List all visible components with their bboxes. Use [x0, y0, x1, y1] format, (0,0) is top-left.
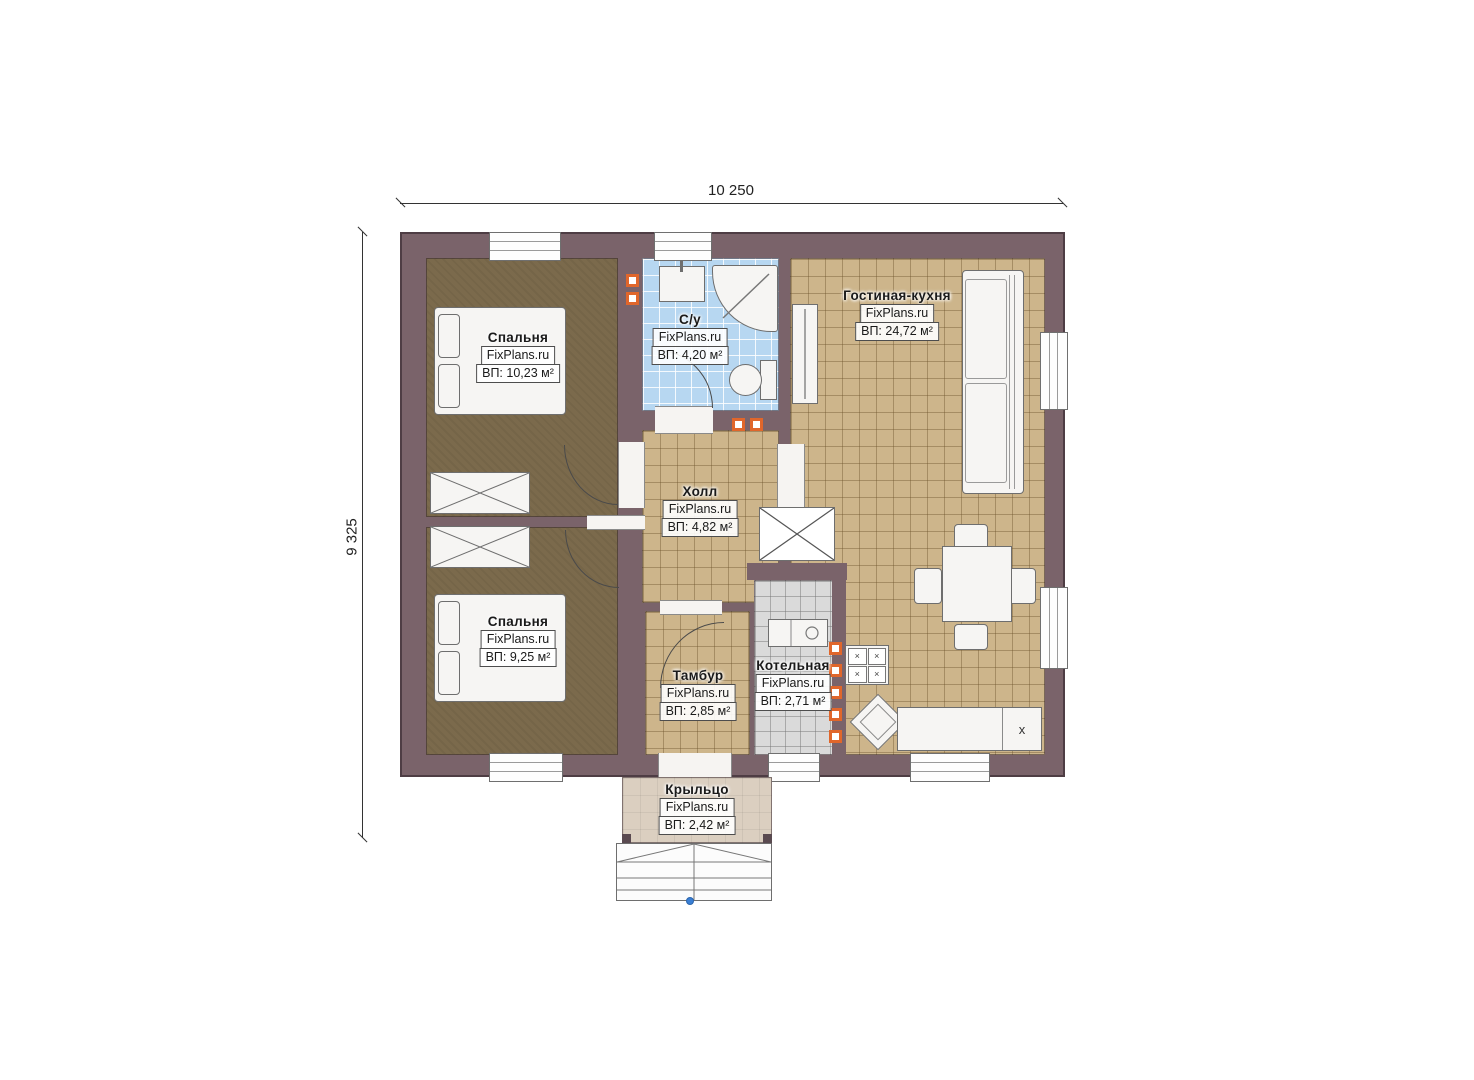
- burner-icon: ×: [848, 648, 867, 665]
- room-area: ВП: 2,42 м²: [659, 816, 736, 835]
- entry-door-opening: [658, 753, 732, 779]
- window-bathroom-top: [654, 232, 712, 261]
- bedroom2-door-opening: [587, 515, 645, 530]
- watermark: FixPlans.ru: [481, 346, 556, 365]
- room-label-porch: Крыльцо FixPlans.ru ВП: 2,42 м²: [659, 782, 736, 835]
- radiator: [829, 730, 842, 743]
- toilet-bowl: [729, 364, 762, 396]
- room-area: ВП: 2,71 м²: [755, 692, 832, 711]
- room-label-bathroom: С/у FixPlans.ru ВП: 4,20 м²: [652, 312, 729, 365]
- wardrobe: [430, 472, 530, 514]
- pillow: [438, 314, 460, 358]
- dimension-line-top: [400, 203, 1063, 204]
- dimension-line-left: [362, 232, 363, 838]
- pillow: [438, 601, 460, 645]
- floor-plan-page: 10 250 9 325: [0, 0, 1474, 1080]
- hall-tambour-opening: [660, 600, 722, 615]
- tall-radiator-line: [793, 305, 817, 403]
- room-area: ВП: 10,23 м²: [476, 364, 560, 383]
- chair: [914, 568, 942, 604]
- room-label-bedroom2: Спальня FixPlans.ru ВП: 9,25 м²: [480, 614, 557, 667]
- burner-icon: ×: [848, 666, 867, 683]
- chair: [954, 624, 988, 650]
- tall-radiator: [792, 304, 818, 404]
- sink-tap: [680, 260, 683, 272]
- window-boiler-bottom: [768, 753, 820, 782]
- stove: × × × ×: [845, 645, 889, 685]
- room-label-tambour: Тамбур FixPlans.ru ВП: 2,85 м²: [660, 668, 737, 721]
- room-label-bedroom1: Спальня FixPlans.ru ВП: 10,23 м²: [476, 330, 560, 383]
- window-bedroom1-top: [489, 232, 561, 261]
- watermark: FixPlans.ru: [663, 500, 738, 519]
- sofa-cushion: [965, 279, 1007, 379]
- bathroom-door-opening: [655, 406, 713, 434]
- radiator: [626, 274, 639, 287]
- toilet-tank: [760, 360, 777, 400]
- vent-cross-icon: [760, 508, 834, 560]
- stove-burners: × × × ×: [848, 648, 886, 682]
- sofa: [962, 270, 1024, 494]
- watermark: FixPlans.ru: [653, 328, 728, 347]
- porch-steps-lines: [617, 844, 771, 900]
- watermark: FixPlans.ru: [860, 304, 935, 323]
- appliance-x-label: x: [1003, 708, 1041, 750]
- sofa-cushion: [965, 383, 1007, 483]
- sofa-back-line: [1014, 275, 1015, 489]
- porch-post: [763, 834, 772, 843]
- pillow: [438, 651, 460, 695]
- room-area: ВП: 2,85 м²: [660, 702, 737, 721]
- dimension-height-label: 9 325: [344, 518, 361, 556]
- entry-point-marker: [686, 897, 694, 905]
- sink-basin: [860, 704, 897, 741]
- watermark: FixPlans.ru: [660, 798, 735, 817]
- bedroom1-door-opening: [618, 442, 645, 508]
- radiator: [732, 418, 745, 431]
- window-kitchen-bottom: [910, 753, 990, 782]
- room-name: С/у: [679, 312, 701, 327]
- kitchen-counter: x: [897, 707, 1042, 751]
- wardrobe-cross-icon: [431, 527, 529, 567]
- pillow: [438, 364, 460, 408]
- hall-living-opening: [777, 444, 805, 510]
- window-living-right-1: [1040, 332, 1068, 410]
- room-name: Спальня: [488, 330, 548, 345]
- porch-post: [622, 834, 631, 843]
- room-area: ВП: 4,82 м²: [662, 518, 739, 537]
- window-bedroom2-bottom: [489, 753, 563, 782]
- radiator: [750, 418, 763, 431]
- watermark: FixPlans.ru: [481, 630, 556, 649]
- room-label-hall: Холл FixPlans.ru ВП: 4,82 м²: [662, 484, 739, 537]
- boiler-unit: [768, 619, 828, 647]
- watermark: FixPlans.ru: [661, 684, 736, 703]
- room-label-boiler: Котельная FixPlans.ru ВП: 2,71 м²: [755, 658, 832, 711]
- wardrobe-cross-icon: [431, 473, 529, 513]
- wall-segment: [747, 563, 847, 580]
- room-name: Гостиная-кухня: [843, 288, 951, 303]
- burner-icon: ×: [868, 666, 887, 683]
- room-area: ВП: 4,20 м²: [652, 346, 729, 365]
- room-label-living-kitchen: Гостиная-кухня FixPlans.ru ВП: 24,72 м²: [843, 288, 951, 341]
- radiator: [829, 642, 842, 655]
- chair: [1008, 568, 1036, 604]
- boiler-detail: [769, 620, 827, 646]
- room-name: Тамбур: [673, 668, 724, 683]
- porch-steps: [616, 843, 772, 901]
- room-name: Котельная: [756, 658, 829, 673]
- burner-icon: ×: [868, 648, 887, 665]
- radiator: [626, 292, 639, 305]
- dining-table: [942, 546, 1012, 622]
- sofa-back-line: [1009, 275, 1010, 489]
- watermark: FixPlans.ru: [756, 674, 831, 693]
- wardrobe: [430, 526, 530, 568]
- vent-shaft: [759, 507, 835, 561]
- room-name: Спальня: [488, 614, 548, 629]
- window-living-right-2: [1040, 587, 1068, 669]
- room-name: Крыльцо: [665, 782, 729, 797]
- room-area: ВП: 24,72 м²: [855, 322, 939, 341]
- room-area: ВП: 9,25 м²: [480, 648, 557, 667]
- room-name: Холл: [682, 484, 717, 499]
- dimension-width-label: 10 250: [708, 182, 754, 199]
